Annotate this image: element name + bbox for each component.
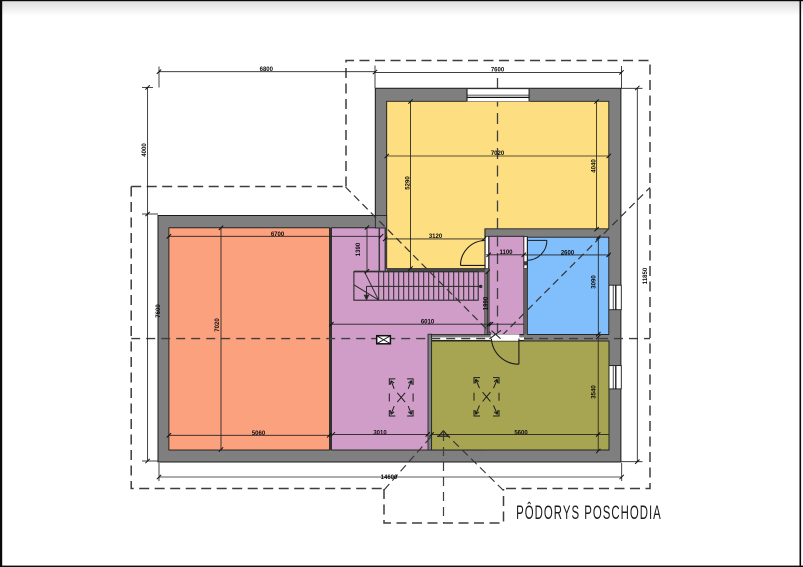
svg-text:PÔDORYS POSCHODIA: PÔDORYS POSCHODIA — [516, 501, 662, 524]
svg-text:1100: 1100 — [499, 250, 513, 256]
svg-text:14600: 14600 — [381, 475, 398, 481]
svg-text:6700: 6700 — [271, 232, 285, 238]
svg-text:7600: 7600 — [491, 67, 505, 73]
svg-text:3010: 3010 — [373, 431, 387, 437]
svg-text:1990: 1990 — [483, 296, 489, 310]
svg-text:6010: 6010 — [421, 320, 435, 326]
svg-text:3540: 3540 — [591, 385, 597, 399]
svg-text:5600: 5600 — [514, 431, 528, 437]
svg-text:7600: 7600 — [156, 304, 162, 318]
svg-text:2600: 2600 — [561, 250, 575, 256]
svg-text:5060: 5060 — [252, 431, 266, 437]
svg-text:1390: 1390 — [356, 242, 362, 256]
svg-text:3090: 3090 — [592, 275, 598, 289]
svg-text:7020: 7020 — [215, 318, 221, 332]
svg-text:3120: 3120 — [429, 234, 443, 240]
svg-text:7020: 7020 — [491, 151, 505, 157]
svg-text:4040: 4040 — [592, 159, 598, 173]
svg-text:4000: 4000 — [142, 143, 148, 157]
svg-text:6800: 6800 — [260, 67, 274, 73]
svg-text:11850: 11850 — [643, 267, 649, 284]
svg-text:5290: 5290 — [405, 176, 411, 190]
